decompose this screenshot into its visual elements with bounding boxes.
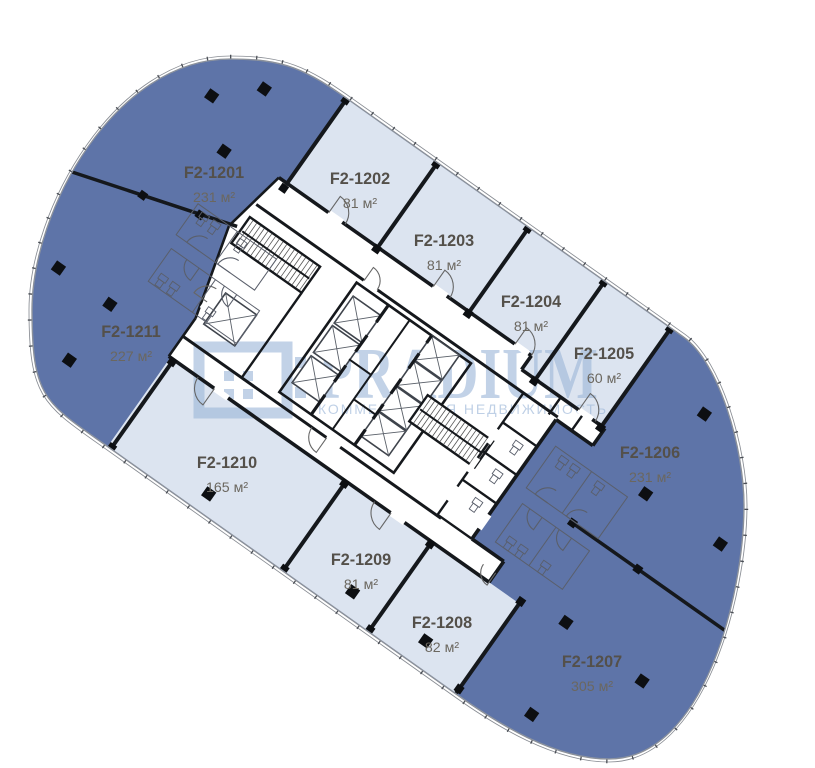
svg-text:81 м²: 81 м² (344, 577, 378, 593)
svg-text:F2-1207: F2-1207 (562, 653, 622, 671)
svg-text:165 м²: 165 м² (206, 480, 248, 496)
svg-text:F2-1202: F2-1202 (330, 170, 390, 188)
svg-text:305 м²: 305 м² (571, 679, 613, 695)
svg-text:F2-1201: F2-1201 (184, 164, 244, 182)
svg-text:F2-1205: F2-1205 (574, 345, 634, 363)
svg-text:F2-1210: F2-1210 (197, 454, 257, 472)
svg-text:F2-1211: F2-1211 (101, 323, 160, 341)
svg-text:82 м²: 82 м² (425, 640, 459, 656)
svg-text:F2-1208: F2-1208 (412, 614, 472, 632)
svg-text:F2-1204: F2-1204 (501, 293, 561, 311)
svg-text:81 м²: 81 м² (514, 319, 548, 335)
svg-text:231 м²: 231 м² (629, 470, 671, 486)
svg-text:81 м²: 81 м² (427, 258, 461, 274)
svg-text:81 м²: 81 м² (343, 196, 377, 212)
svg-text:F2-1203: F2-1203 (414, 232, 474, 250)
svg-text:КОММЕРЧЕСКАЯ НЕДВИЖИМОСТЬ: КОММЕРЧЕСКАЯ НЕДВИЖИМОСТЬ (318, 401, 608, 417)
svg-text:F2-1206: F2-1206 (620, 444, 680, 462)
svg-text:F2-1209: F2-1209 (331, 551, 391, 569)
svg-text:60 м²: 60 м² (587, 371, 621, 387)
svg-text:227 м²: 227 м² (110, 349, 152, 365)
svg-text:231 м²: 231 м² (193, 190, 235, 206)
